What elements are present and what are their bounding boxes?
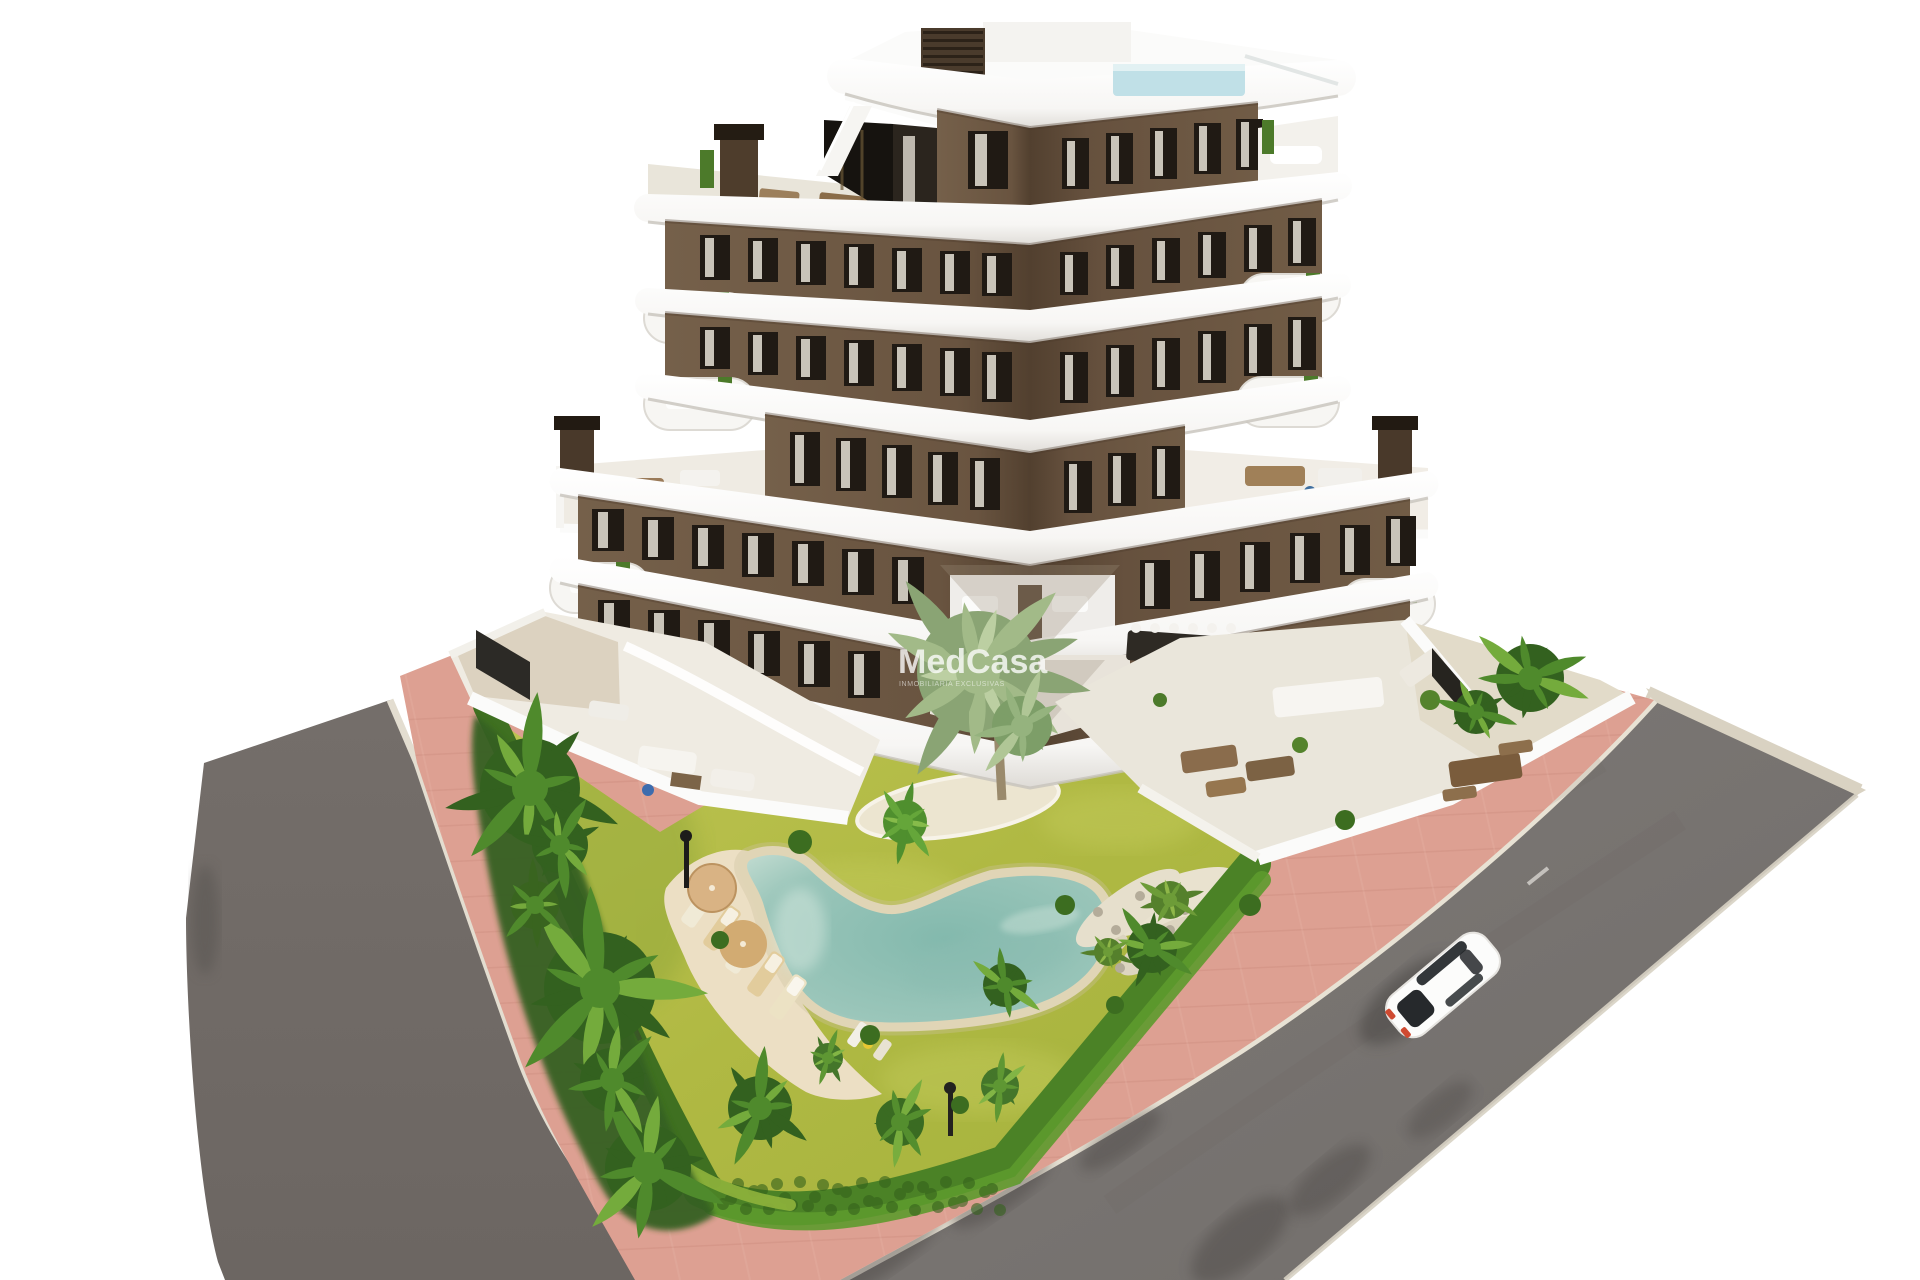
svg-text:MedCasa: MedCasa: [898, 643, 1048, 681]
svg-text:INMOBILIARIA EXCLUSIVAS: INMOBILIARIA EXCLUSIVAS: [899, 681, 1005, 688]
